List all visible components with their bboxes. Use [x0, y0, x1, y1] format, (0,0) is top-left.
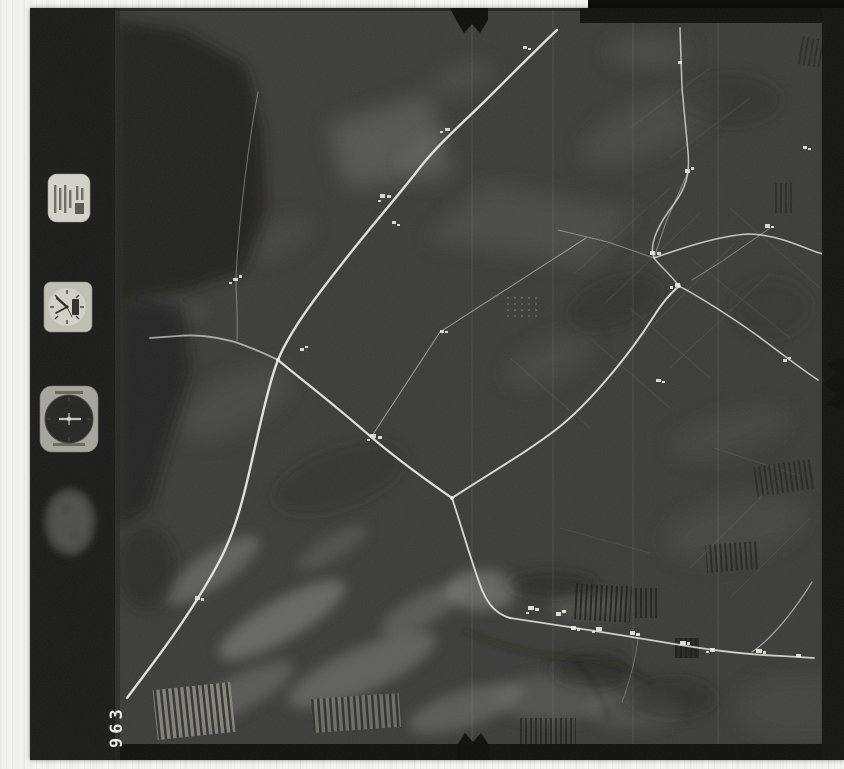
film-grain [30, 8, 844, 760]
aerial-photo-frame: 963 [30, 8, 844, 760]
scanned-aerial-photo-page: 963 [0, 0, 844, 769]
aerial-photo: 963 [30, 8, 844, 760]
